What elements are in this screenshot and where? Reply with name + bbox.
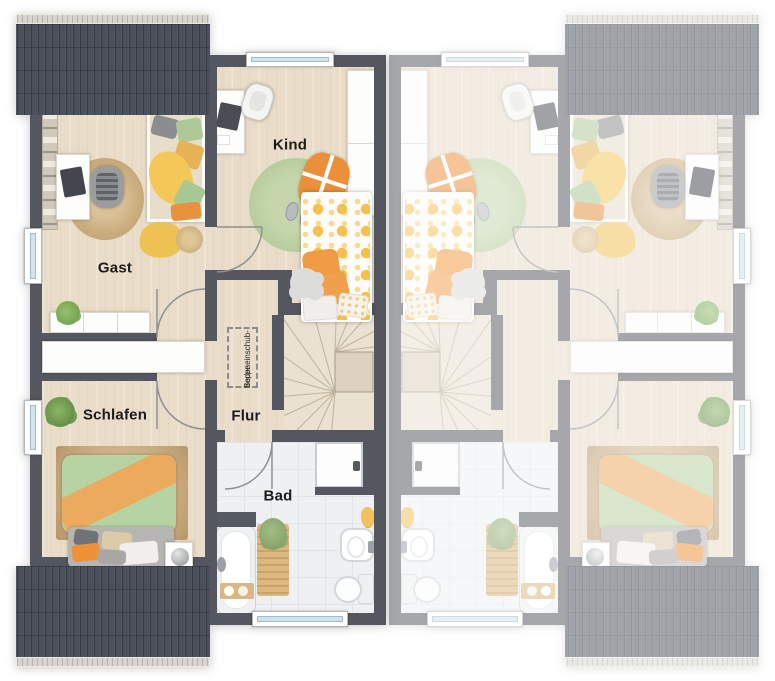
window-bath <box>427 611 523 627</box>
pillow-white <box>437 295 473 321</box>
door-bath <box>225 442 272 489</box>
window-glass <box>251 57 329 62</box>
cloud-rug <box>455 268 485 298</box>
window-child <box>441 52 529 67</box>
door-child <box>513 227 558 272</box>
pillow-gray <box>98 549 127 564</box>
pillow-white <box>302 295 338 321</box>
blanket-orange <box>599 455 713 533</box>
door-bedroom <box>570 381 618 429</box>
housing-unit-right-mirrored <box>389 14 759 667</box>
label-room-flur: Flur <box>231 408 260 425</box>
blanket-orange <box>62 455 176 533</box>
window-glass <box>739 233 745 279</box>
cloud-rug <box>290 268 320 298</box>
child-bed <box>301 192 372 322</box>
roof-tiles <box>565 24 759 115</box>
pillow-dotted <box>406 292 439 318</box>
roof-gutter <box>565 14 759 24</box>
window-bath <box>252 611 348 627</box>
label-room-kind: Kind <box>273 137 307 154</box>
pillow-orange <box>71 543 101 563</box>
pillow-dotted <box>337 292 370 318</box>
housing-unit-left: Bodeneinschub- treppe Gast Kind Schlafen… <box>16 14 386 667</box>
door-guest <box>157 289 205 337</box>
window-child <box>246 52 334 67</box>
roof-bottom <box>565 566 759 667</box>
door-bath <box>503 442 550 489</box>
sphere-lamp <box>586 548 604 566</box>
roof-top <box>565 14 759 115</box>
roof-gutter <box>16 14 210 24</box>
duvet-green <box>599 455 713 533</box>
headboard <box>68 527 174 567</box>
attic-hatch: Bodeneinschub- treppe <box>227 327 258 388</box>
duvet-green <box>62 455 176 533</box>
door-guest <box>570 289 618 337</box>
roof-top <box>16 14 210 115</box>
pillow-orange <box>674 543 704 563</box>
pillow-gray <box>649 549 678 564</box>
roof-gutter <box>565 657 759 667</box>
window-bedroom <box>24 400 42 455</box>
door-child <box>217 227 262 272</box>
window-guest <box>733 228 751 284</box>
headboard <box>601 527 707 567</box>
roof-bottom <box>16 566 210 667</box>
window-glass <box>30 405 36 450</box>
floorplan-scene: Bodeneinschub- treppe Gast Kind Schlafen… <box>0 0 775 681</box>
sphere-lamp <box>171 548 189 566</box>
window-glass <box>739 405 745 450</box>
roof-tiles <box>565 566 759 657</box>
roof-tiles <box>16 566 210 657</box>
window-glass <box>446 57 524 62</box>
window-bedroom <box>733 400 751 455</box>
window-guest <box>24 228 42 284</box>
window-glass <box>30 233 36 279</box>
roof-gutter <box>16 657 210 667</box>
window-glass <box>257 616 343 622</box>
label-room-schlafen: Schlafen <box>83 407 147 424</box>
label-room-bad: Bad <box>264 488 293 505</box>
door-bedroom <box>157 381 205 429</box>
label-room-gast: Gast <box>98 260 132 277</box>
roof-tiles <box>16 24 210 115</box>
window-glass <box>432 616 518 622</box>
child-bed <box>403 192 474 322</box>
